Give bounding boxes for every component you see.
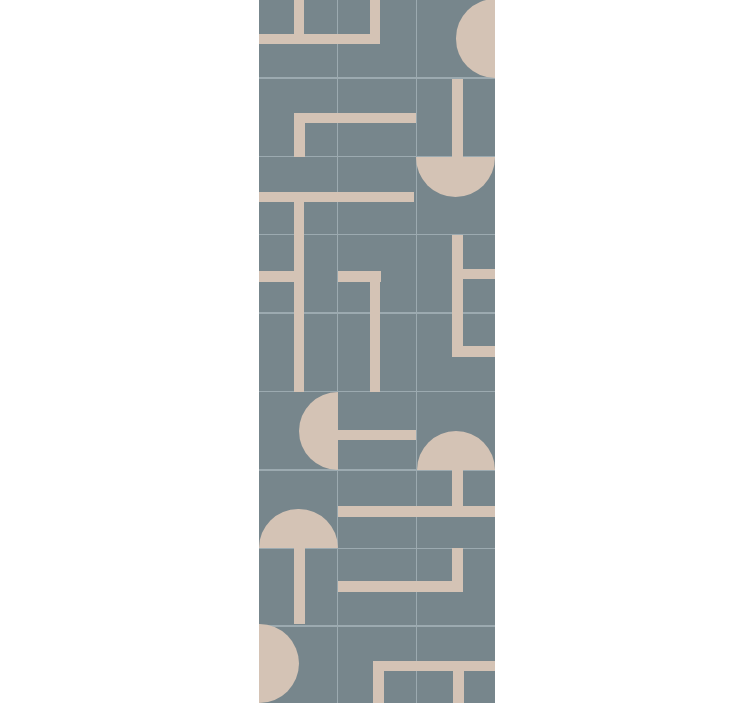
comb-leg1-row9 bbox=[373, 671, 384, 703]
half-disc-right-edge-top bbox=[456, 0, 495, 78]
rug-grid-line-vertical bbox=[416, 0, 418, 703]
stub-left-edge-row4 bbox=[259, 271, 294, 282]
comb-bar-row9 bbox=[373, 661, 495, 672]
rug-grid-line-horizontal bbox=[259, 625, 495, 627]
corner-leg-row2 bbox=[294, 123, 305, 157]
key-bar-row6 bbox=[338, 430, 416, 441]
half-disc-left-facing-row6 bbox=[299, 392, 338, 470]
hbar-row3-left bbox=[259, 192, 414, 203]
rug-pattern-image bbox=[259, 0, 495, 703]
half-disc-up-row7-left bbox=[259, 509, 338, 548]
page-background bbox=[0, 0, 752, 703]
comb-leg2-row9 bbox=[453, 671, 463, 703]
half-disc-down-row3 bbox=[416, 157, 495, 197]
stem-left-row8 bbox=[294, 548, 305, 624]
stub-right-edge-row4 bbox=[463, 269, 495, 280]
hbar-row7 bbox=[338, 506, 495, 517]
corner-leg-mid-rows4-5 bbox=[370, 281, 381, 391]
half-disc-left-edge-row9 bbox=[259, 624, 299, 703]
top-staple-left-prong bbox=[294, 0, 305, 34]
top-staple-right-prong bbox=[370, 0, 381, 34]
vbar-right-rows4-5 bbox=[452, 235, 463, 357]
top-staple-bar bbox=[259, 34, 380, 45]
half-disc-up-row6-right bbox=[417, 431, 495, 470]
stem-right-row7 bbox=[452, 470, 463, 507]
lbar-right-row5 bbox=[452, 346, 495, 357]
corner-bar-mid-row4 bbox=[338, 271, 381, 282]
vbar-right-row2 bbox=[452, 79, 463, 157]
l-horiz-row8 bbox=[338, 581, 463, 592]
vline-left-long bbox=[294, 202, 305, 392]
corner-bar-row2 bbox=[294, 113, 416, 124]
rug-grid-line-vertical bbox=[337, 0, 339, 703]
